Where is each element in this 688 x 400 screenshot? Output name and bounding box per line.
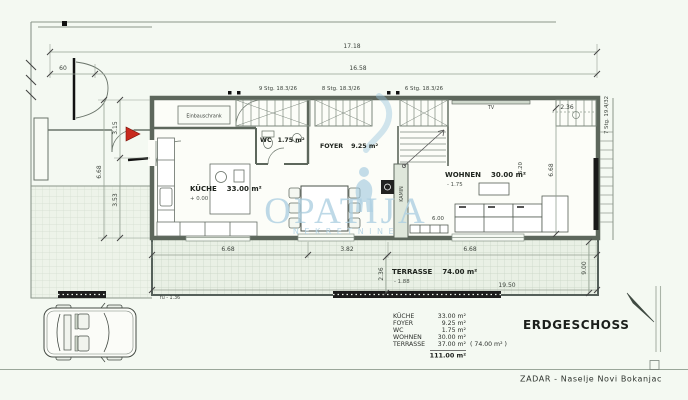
dim-terrasse-depth: 2.36: [378, 267, 385, 281]
driveway: [31, 186, 152, 298]
watermark-subtitle: NEKRETNINE: [293, 227, 399, 236]
dim-sofa-width: 6.00: [432, 216, 445, 222]
floor-title: ERDGESCHOSS: [523, 318, 630, 332]
watermark-figure: [359, 167, 369, 177]
dim-left-lower: 3.53: [112, 193, 119, 207]
legend-row-value: 9.25 m²: [442, 320, 467, 327]
retaining-wall-hatch: [333, 291, 501, 298]
stair-label-9stg: 9 Stg. 18.3/26: [259, 86, 298, 92]
legend-total: 111.00 m²: [430, 352, 467, 360]
level-kueche: + 0.00: [190, 196, 209, 202]
dim-wohnen-width: 6.68: [463, 246, 477, 253]
hatched-wall: [594, 158, 599, 230]
dim-wohnen-height: 6.68: [548, 163, 555, 177]
legend-row-label: WOHNEN: [393, 334, 422, 341]
dim-left-upper: 3.15: [112, 121, 119, 135]
legend-row-value: 30.00 m²: [438, 334, 467, 341]
legend-row-label: FOYER: [393, 320, 414, 327]
room-label-kueche: KÜCHE33.00 m²: [190, 184, 262, 193]
ground-level-note: fu - 1.36: [160, 295, 180, 301]
floor-plan-sheet: OPATIJA NEKRETNINE KÜCHE33.00 m² + 0.00 …: [0, 0, 688, 400]
room-label-wc: WC1.75 m²: [260, 137, 305, 144]
coffee-table: [479, 183, 509, 195]
legend-row-value: 33.00 m²: [438, 313, 467, 320]
dim-kueche-width: 6.68: [221, 246, 235, 253]
legend-row-value: 37.00 m²: [438, 341, 467, 348]
stair-label-8stg: 8 Stg. 18.3/26: [322, 86, 361, 92]
label-kamin: KAMIN: [399, 186, 405, 202]
dim-total-width: 17.18: [343, 43, 360, 50]
level-wohnen: - 1.75: [447, 182, 463, 188]
legend-row-label: TERRASSE: [392, 341, 425, 348]
project-location: ZADAR - Naselje Novi Bokanjac: [520, 375, 662, 384]
level-terrasse: - 1.88: [394, 279, 410, 285]
legend-row-label: KÜCHE: [393, 311, 414, 320]
stair-label-7stg: 7 Stg. 19.4/32: [604, 96, 610, 134]
car-icon: [44, 303, 136, 362]
dim-inner-width: 16.58: [349, 65, 366, 72]
label-einbauschrank: Einbauschrank: [186, 114, 222, 120]
floor-plan-drawing: OPATIJA NEKRETNINE KÜCHE33.00 m² + 0.00 …: [0, 0, 688, 400]
legend-row-value: 1.75 m²: [442, 327, 467, 334]
dim-wohnen-inner: 6.20: [518, 161, 524, 174]
stair-label-6stg: 6 Stg. 18.3/26: [405, 86, 444, 92]
tv-console: [452, 101, 530, 105]
dim-right-depth: 9.00: [581, 261, 588, 275]
dim-terrasse-length: 19.50: [498, 282, 515, 289]
dim-top-right: 2.36: [560, 104, 574, 111]
dim-mid-width: 3.82: [340, 246, 354, 253]
legend-row-label: WC: [393, 327, 403, 334]
legend-row-extra: ( 74.00 m² ): [470, 341, 507, 348]
dim-offset: 60: [59, 65, 67, 72]
label-tv: TV: [487, 105, 495, 111]
dim-left-total: 6.68: [96, 165, 103, 179]
